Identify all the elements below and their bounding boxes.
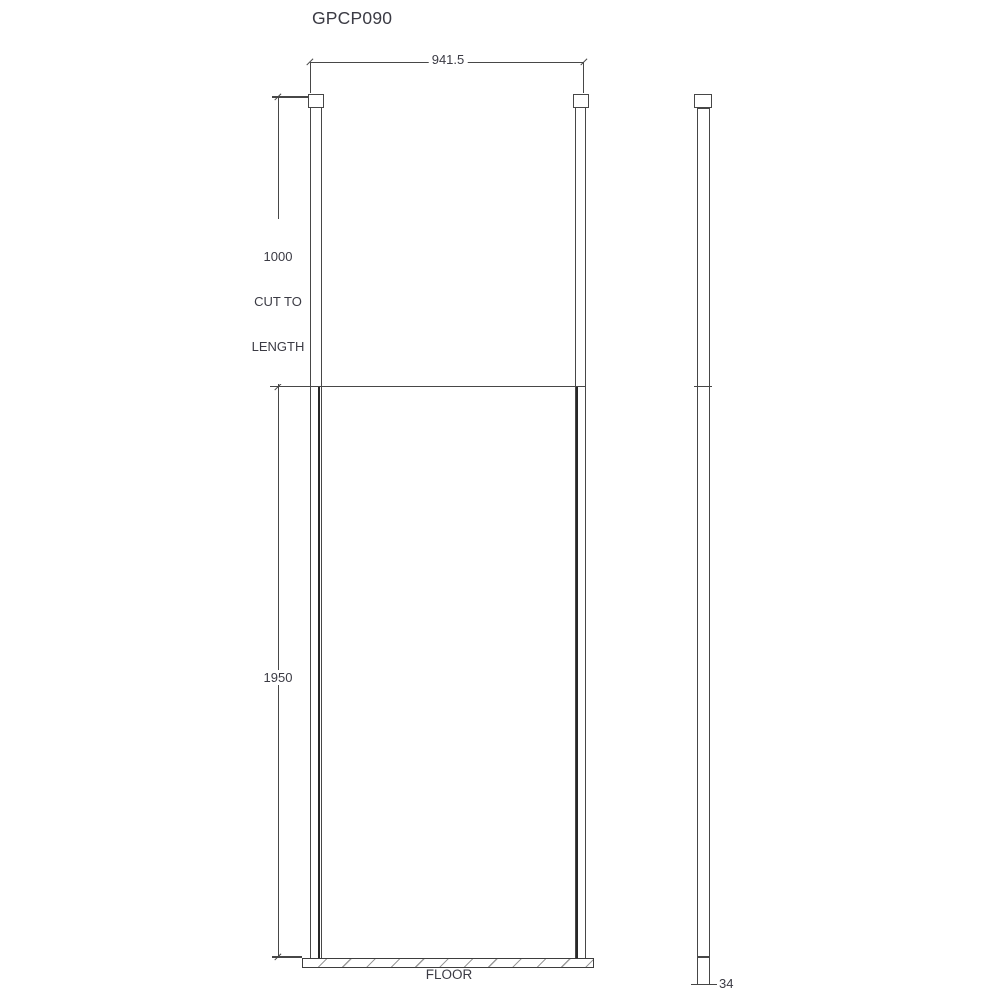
floor-label: FLOOR — [423, 967, 476, 982]
glass-panel — [318, 387, 579, 958]
width-dimension-extension-left — [310, 62, 311, 93]
side-view-top-cap — [694, 94, 712, 108]
depth-dimension-value: 34 — [716, 976, 736, 991]
depth-dimension-line — [691, 984, 717, 985]
left-post-outer-edge — [310, 107, 311, 958]
width-dimension-value: 941.5 — [429, 52, 468, 67]
product-code-title: GPCP090 — [312, 8, 392, 29]
technical-drawing-canvas: GPCP090 941.5 1000 CUT TO LENGTH 1950 FL… — [0, 0, 1000, 1000]
side-view-panel-top-tick — [694, 386, 712, 387]
width-dimension-extension-right — [583, 62, 584, 93]
right-post-outer-edge — [585, 107, 586, 958]
right-post-top-cap — [573, 94, 589, 108]
left-post-top-cap — [308, 94, 324, 108]
post-cut-dimension-label: 1000 CUT TO LENGTH — [249, 219, 308, 384]
side-view-floor-level-tick — [697, 956, 710, 957]
post-cut-note-line2: CUT TO — [252, 294, 305, 309]
side-view-profile — [697, 108, 710, 986]
post-cut-note-line3: LENGTH — [252, 339, 305, 354]
post-cut-value: 1000 — [252, 249, 305, 264]
panel-height-dimension-value: 1950 — [261, 670, 296, 685]
